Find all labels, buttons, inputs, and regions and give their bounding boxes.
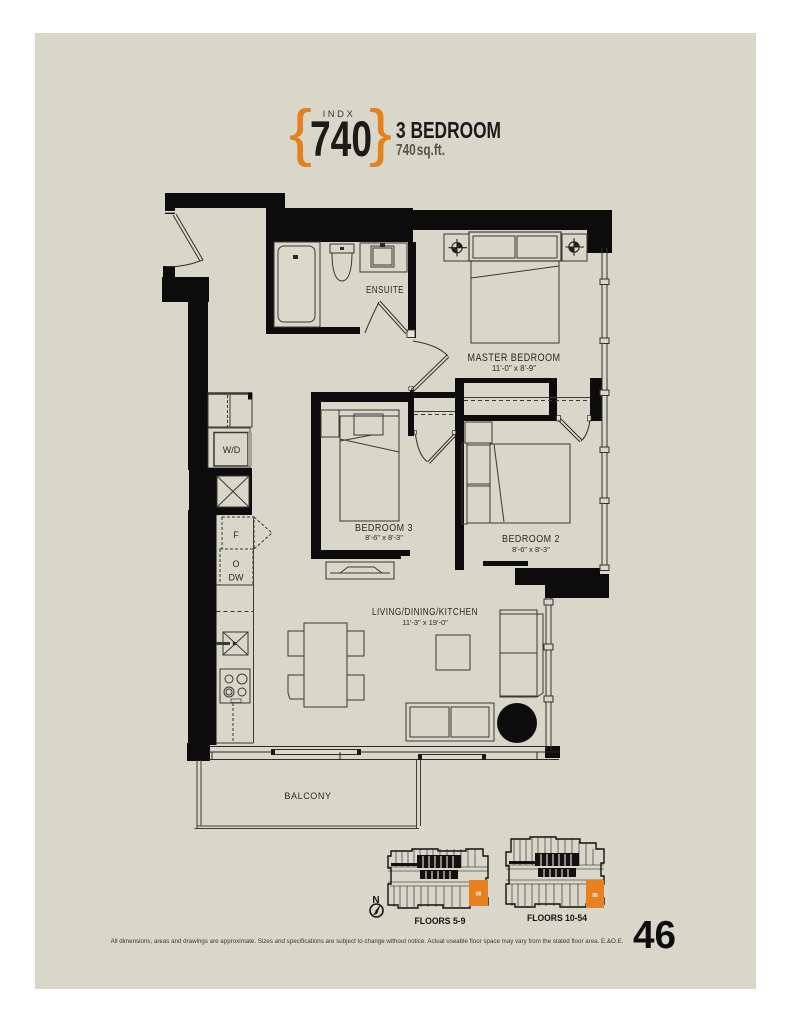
svg-text:740: 740 — [310, 111, 372, 167]
svg-text:}: } — [369, 98, 392, 168]
svg-text:W/D: W/D — [223, 445, 241, 455]
svg-text:O: O — [232, 559, 239, 569]
svg-text:F: F — [233, 530, 239, 540]
svg-text:BEDROOM 2: BEDROOM 2 — [502, 533, 560, 545]
svg-text:MASTER BEDROOM: MASTER BEDROOM — [468, 352, 561, 364]
svg-text:740 sq.ft.: 740 sq.ft. — [396, 142, 445, 159]
svg-text:FLOORS 5-9: FLOORS 5-9 — [415, 916, 466, 927]
svg-text:LIVING/DINING/KITCHEN: LIVING/DINING/KITCHEN — [372, 606, 478, 618]
svg-text:8'-6" x 8'-3": 8'-6" x 8'-3" — [512, 545, 550, 554]
svg-text:BALCONY: BALCONY — [284, 791, 331, 801]
svg-text:11'-0" x 8'-9": 11'-0" x 8'-9" — [492, 364, 536, 373]
svg-text:08: 08 — [476, 892, 482, 898]
svg-text:08: 08 — [592, 893, 598, 899]
svg-text:3 BEDROOM: 3 BEDROOM — [396, 117, 501, 143]
svg-text:All dimensions, areas and draw: All dimensions, areas and drawings are a… — [111, 938, 624, 945]
svg-text:11'-3" x 19'-0": 11'-3" x 19'-0" — [402, 618, 448, 627]
svg-text:46: 46 — [633, 914, 676, 957]
svg-text:8'-6" x 8'-3": 8'-6" x 8'-3" — [365, 533, 403, 542]
svg-text:{: { — [289, 98, 312, 168]
svg-text:ENSUITE: ENSUITE — [366, 285, 404, 296]
svg-text:FLOORS 10-54: FLOORS 10-54 — [527, 913, 588, 924]
svg-text:DW: DW — [229, 573, 244, 583]
